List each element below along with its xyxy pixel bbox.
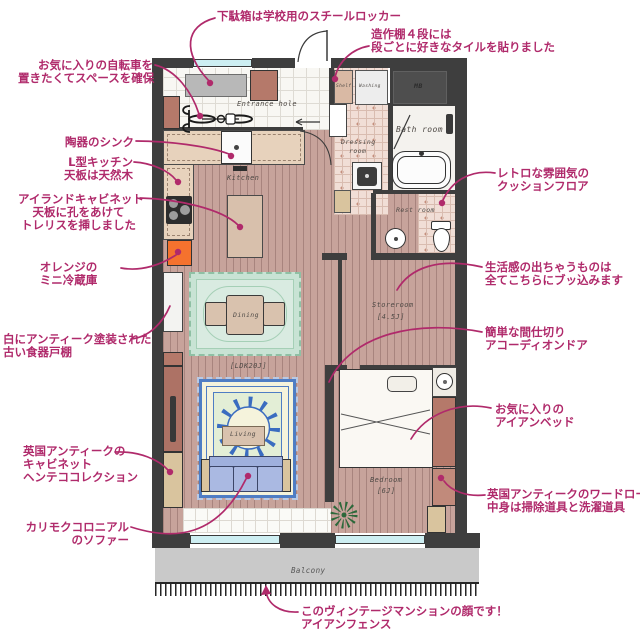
- bathtub-icon: [392, 151, 451, 189]
- wall-top-c: [331, 58, 467, 68]
- iron-fence: [155, 582, 479, 596]
- label-living: Living: [230, 430, 256, 438]
- wardrobe-lower: [432, 468, 456, 506]
- note-storeroom: 生活感の出ちゃうものは 全てこちらにブッ込みます: [485, 261, 623, 287]
- floorplan-diagram: Entrance hole Kitchen Dining [LDK20J] Li…: [0, 0, 640, 640]
- note-old-cupboard: 白にアンティーク塗装された 古い食器戸棚: [3, 333, 151, 359]
- label-bath: Bath room: [396, 125, 443, 134]
- note-accordion: 簡単な間仕切り アコーディオンドア: [485, 326, 588, 352]
- island-cabinet: [227, 195, 263, 258]
- stove-icon: [166, 196, 192, 224]
- shower-icon: [446, 114, 453, 134]
- label-mb: MB: [414, 82, 423, 90]
- fan-table: [432, 367, 457, 397]
- brown-box-small: [163, 352, 183, 366]
- brown-cabinet: [163, 366, 183, 452]
- wall-bottom-a: [152, 533, 190, 548]
- window-top: [193, 59, 252, 67]
- wardrobe-upper: [432, 397, 456, 467]
- sofa-cushion-3: [257, 466, 283, 492]
- entrance-shelf-box: [250, 70, 278, 101]
- bedroom-tan-box: [427, 506, 446, 533]
- balcony: [155, 548, 479, 582]
- toilet-icon: [430, 221, 452, 253]
- wall-top-b: [252, 58, 295, 68]
- wall-rest-left: [371, 193, 376, 253]
- label-rest: Rest room: [396, 206, 435, 214]
- label-storeroom: Storeroom: [372, 301, 414, 309]
- label-bedroom-size: [6J]: [377, 487, 395, 495]
- window-side-tile: [183, 508, 331, 533]
- steel-locker: [185, 74, 247, 97]
- window-bedroom: [335, 535, 425, 544]
- label-entrance: Entrance hole: [237, 100, 297, 108]
- wall-left: [152, 58, 163, 548]
- wall-right: [455, 58, 467, 548]
- note-uk-cabinet: 英国アンティークの キャビネット ヘンテココレクション: [23, 445, 138, 484]
- label-shelf: Shelf: [336, 84, 352, 89]
- label-dining: Dining: [233, 311, 259, 319]
- uk-antique-cabinet: [163, 452, 183, 508]
- note-tile-shelf: 造作棚４段には 段ごとに好きなタイルを貼りました: [371, 28, 555, 54]
- dressing-tan-box: [334, 190, 351, 213]
- note-cushion-floor: レトロな雰囲気の クッションフロア: [497, 167, 589, 193]
- pillow: [387, 376, 417, 392]
- window-ldk: [190, 535, 280, 544]
- label-dressing-2: room: [349, 147, 366, 155]
- entrance-door-arc: [298, 31, 327, 62]
- wall-bath-rest: [373, 190, 455, 194]
- dining-chair-right: [263, 302, 285, 326]
- note-mini-fridge: オレンジの ミニ冷蔵庫: [18, 261, 119, 287]
- iron-bed: [339, 369, 433, 468]
- note-bicycle: お気に入りの自転車を 置きたくてスペースを確保: [18, 59, 153, 85]
- partition-ldk-storeroom: [338, 260, 342, 368]
- note-l-kitchen: L型キッチン 天板は天然木: [18, 156, 133, 182]
- washing-machine-icon: [352, 162, 382, 190]
- label-dressing-1: Dressing: [341, 138, 376, 146]
- label-balcony: Balcony: [291, 566, 325, 575]
- sofa-cushion-2: [233, 466, 258, 492]
- label-kitchen: Kitchen: [227, 174, 259, 182]
- wall-rest-bottom: [371, 253, 455, 260]
- sofa-cushion-1: [209, 466, 234, 492]
- label-storeroom-size: [4.5J]: [377, 313, 405, 321]
- dressing-door: [329, 104, 347, 137]
- label-bedroom: Bedroom: [370, 476, 402, 484]
- wall-bottom-b: [280, 533, 335, 548]
- wall-top-a: [152, 58, 193, 68]
- note-iron-bed: お気に入りの アイアンベッド: [495, 403, 574, 429]
- note-shoe-locker: 下駄箱は学校用のスチールロッカー: [217, 10, 401, 23]
- dining-chair-left: [205, 302, 227, 326]
- antique-cupboard: [163, 272, 183, 332]
- label-ldk-size: [LDK20J]: [230, 362, 267, 370]
- note-sofa: カリモクコロニアル のソファー: [18, 521, 129, 547]
- wall-bottom-c: [425, 533, 480, 548]
- wall-ldk-bedroom: [325, 368, 334, 502]
- note-ceramic-sink: 陶器のシンク: [18, 136, 134, 149]
- label-washing: Washing: [359, 84, 381, 89]
- step-mark: [233, 166, 247, 171]
- mini-fridge: [167, 240, 192, 266]
- note-iron-fence: このヴィンテージマンションの顔です！ アイアンフェンス: [301, 605, 508, 631]
- note-uk-wardrobe: 英国アンティークのワードローブ 中身は掃除道具と洗濯道具: [487, 488, 640, 514]
- kitchen-sink-icon: [221, 131, 252, 164]
- wall-hook-top: [322, 253, 347, 260]
- rest-sink-icon: [385, 228, 406, 249]
- entrance-side-box: [163, 96, 180, 129]
- note-island-cabinet: アイランドキャビネット 天板に孔をあけて トレリスを挿しました: [18, 193, 139, 232]
